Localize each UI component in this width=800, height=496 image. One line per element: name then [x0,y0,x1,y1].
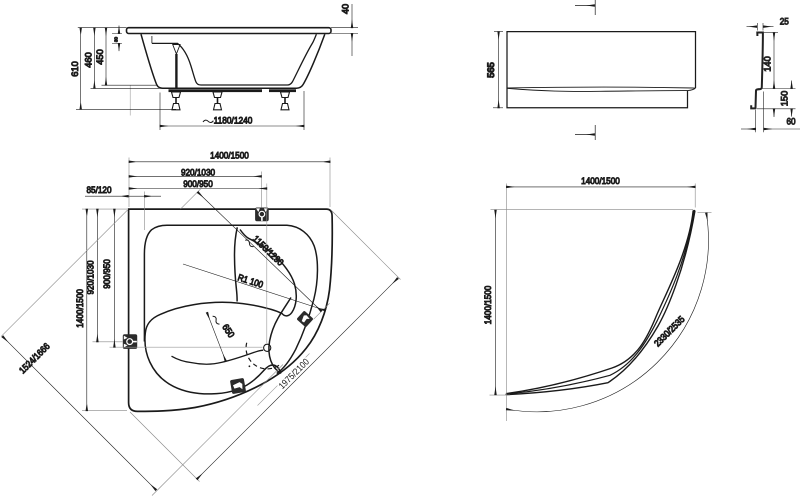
svg-text:1524/1666: 1524/1666 [17,341,51,375]
svg-text:610: 610 [70,61,80,77]
svg-text:30: 30 [113,37,118,43]
svg-text:450: 450 [95,49,105,65]
svg-text:900/950: 900/950 [102,259,112,289]
svg-text:1150/1290: 1150/1290 [251,234,286,268]
svg-text:150: 150 [779,91,789,107]
svg-text:85/120: 85/120 [87,185,112,195]
svg-text:1400/1500: 1400/1500 [483,286,493,325]
svg-text:920/1030: 920/1030 [181,167,215,177]
svg-text:565: 565 [486,62,496,78]
svg-text:40: 40 [340,4,350,14]
svg-text:1400/1500: 1400/1500 [210,151,249,161]
svg-text:650: 650 [220,322,236,339]
svg-text:25: 25 [780,16,789,26]
svg-text:1400/1500: 1400/1500 [581,176,620,186]
svg-text:460: 460 [83,52,93,68]
svg-text:900/950: 900/950 [183,179,213,189]
svg-text:1180/1240: 1180/1240 [214,116,253,126]
svg-text:60: 60 [786,116,795,126]
svg-text:R1 100: R1 100 [237,272,265,290]
svg-text:920/1030: 920/1030 [86,260,96,294]
svg-text:140: 140 [763,56,773,72]
svg-text:1400/1500: 1400/1500 [75,289,85,328]
